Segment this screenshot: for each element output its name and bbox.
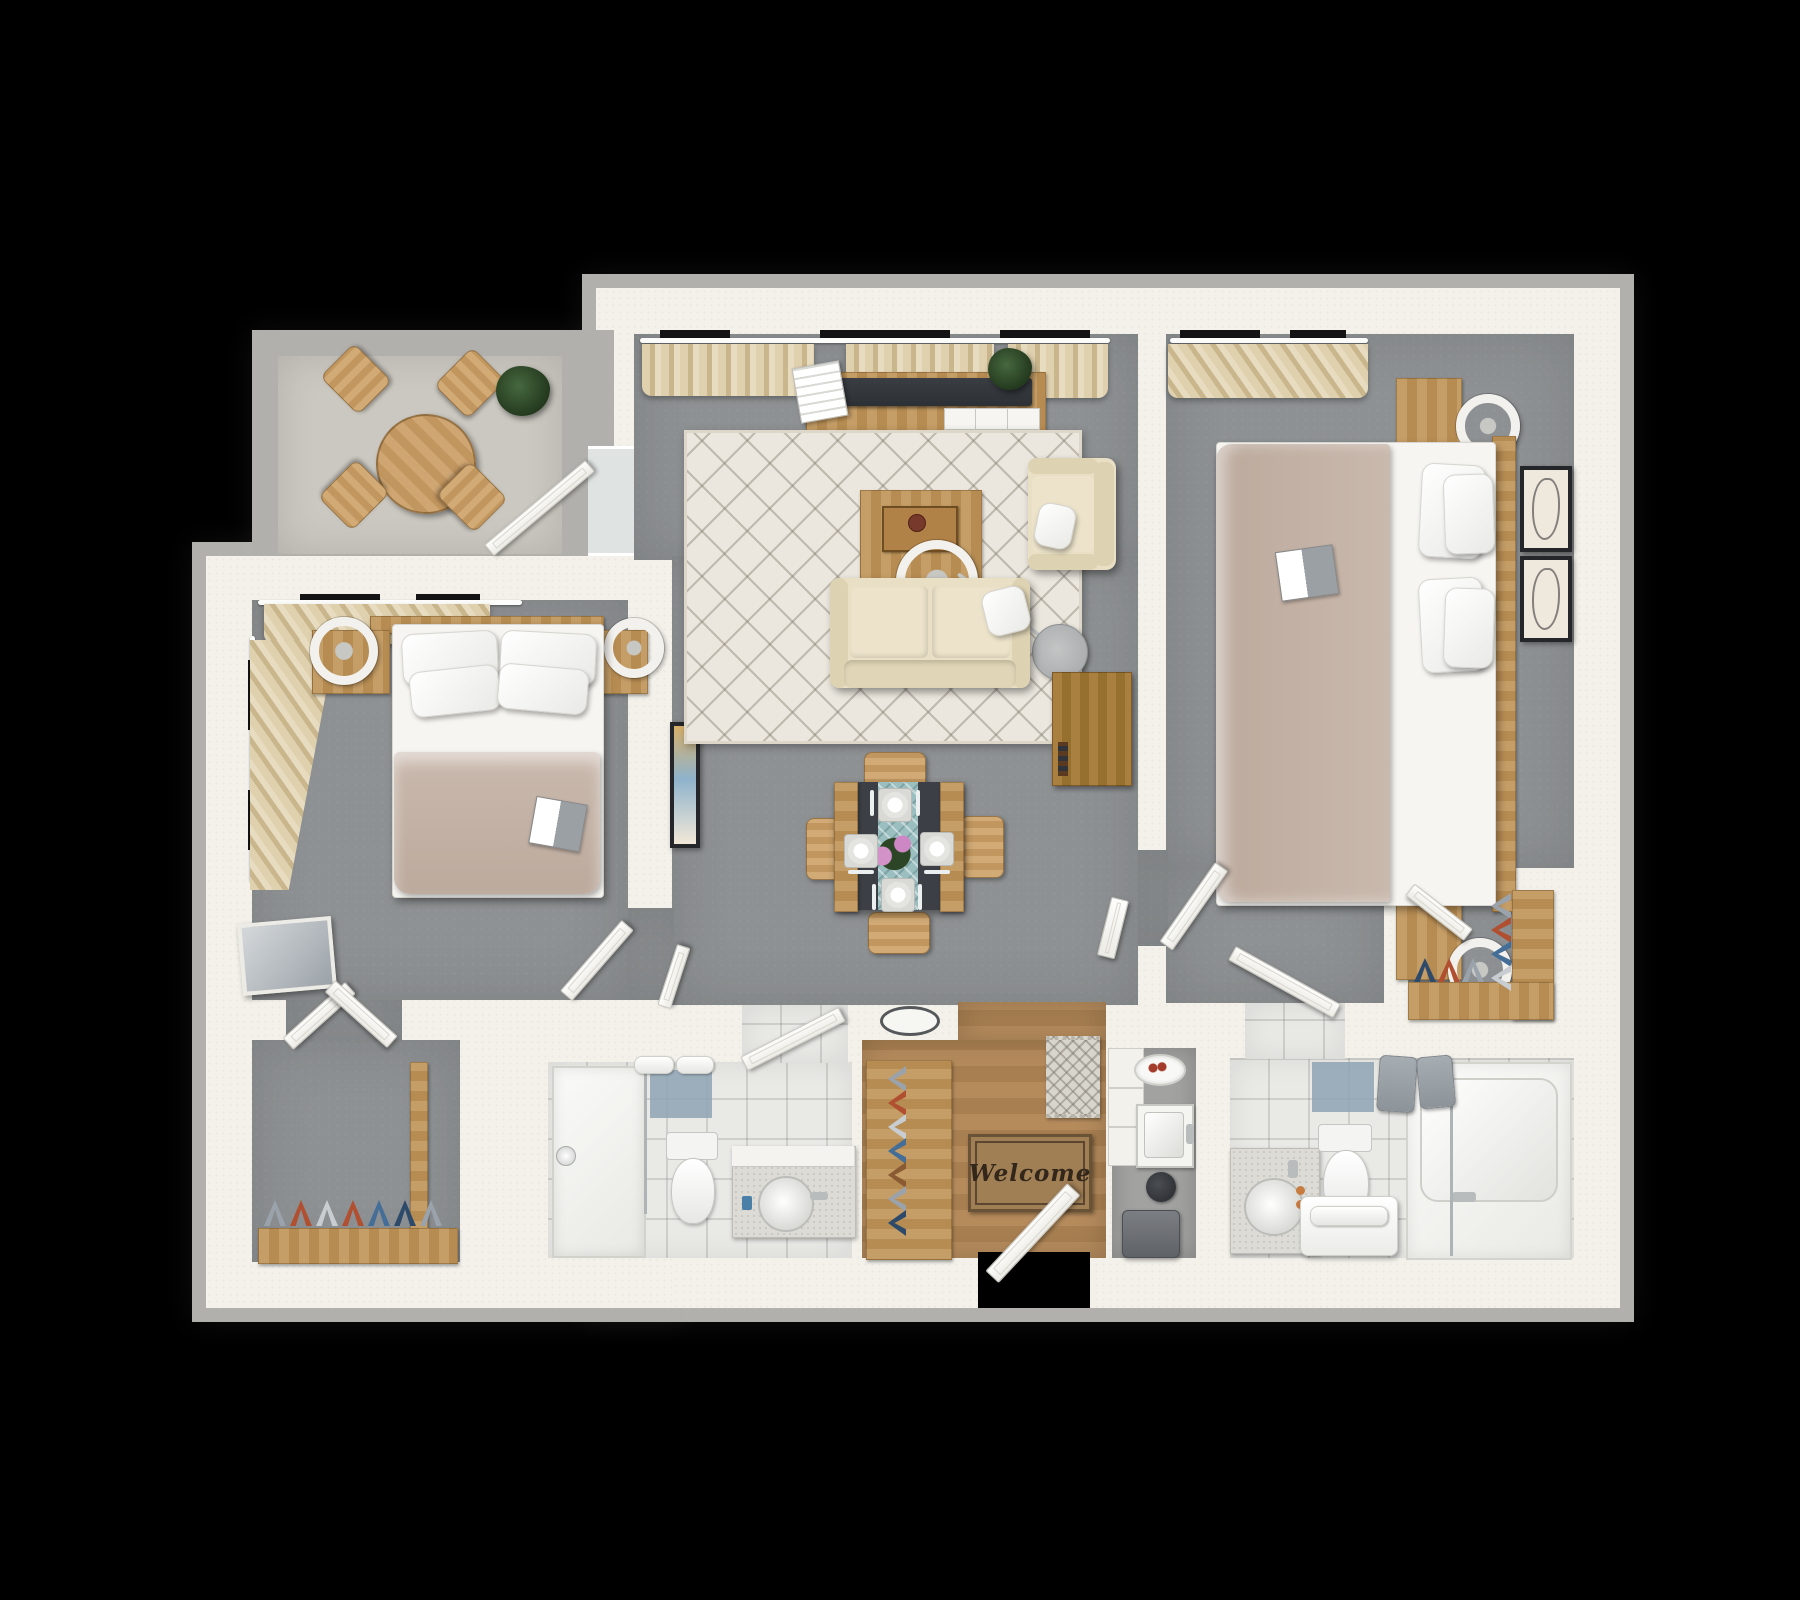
armchair-back [1094, 462, 1114, 566]
dining-chair-south [868, 912, 930, 954]
window-bedroom2-2 [1290, 330, 1346, 338]
cutlery [848, 870, 874, 874]
berry-dots [1148, 1062, 1168, 1074]
bath2-accent-tiles [1312, 1062, 1374, 1112]
dining-chair-east [960, 816, 1004, 878]
window-bedroom2-1 [1180, 330, 1260, 338]
place-setting-north [878, 788, 912, 822]
balcony-sliding-door-opening [588, 446, 634, 556]
bath1-faucet [810, 1192, 828, 1200]
bed2-framed-art-1 [1520, 466, 1572, 552]
cutlery [918, 884, 922, 910]
bed1-book [528, 796, 588, 852]
sofa-cushion-left [850, 586, 928, 658]
tray-bowl [908, 514, 926, 532]
toilet1-bowl [671, 1158, 715, 1224]
bath1-vanity-backsplash [732, 1146, 854, 1167]
bath1-towel-2 [676, 1056, 714, 1074]
hair-dryer [1146, 1172, 1176, 1202]
bath2-sink [1244, 1178, 1304, 1236]
bedroom2-door-opening [1138, 850, 1168, 946]
place-setting-east [920, 832, 954, 866]
curtain-rod-living [640, 338, 1110, 343]
bed2-duvet [1216, 444, 1390, 902]
closet1-shoe-rack [258, 1228, 458, 1264]
shower-head [556, 1146, 576, 1166]
sofa-back [844, 660, 1016, 688]
utility-sink-basin [1144, 1112, 1184, 1158]
closet1-side-panel [410, 1062, 428, 1232]
curtains-bedroom2 [1168, 344, 1368, 398]
waste-bin [1122, 1210, 1180, 1258]
curtains-living-1 [642, 344, 814, 396]
cutlery [872, 884, 876, 910]
curtain-rod-bedroom2 [1170, 338, 1368, 343]
cutlery [916, 790, 920, 816]
toilet2-tank [1318, 1124, 1372, 1152]
cutlery [870, 790, 874, 816]
armchair-arm-bottom [1028, 554, 1098, 570]
bed1-leaning-mirror [237, 916, 337, 996]
window-living-2 [820, 330, 950, 338]
bath1-accent-tiles [650, 1070, 712, 1118]
bath1-cup [742, 1196, 752, 1210]
entry-runner-rug [1046, 1036, 1100, 1118]
toilet1-tank [666, 1132, 718, 1160]
bed2-framed-art-2 [1520, 556, 1572, 642]
closet2-rack-horizontal [1408, 982, 1554, 1020]
bed2-pillow-4 [1443, 587, 1496, 669]
window-living-3 [1000, 330, 1090, 338]
utility-faucet [1186, 1124, 1194, 1144]
bath1-towel-1 [634, 1056, 674, 1074]
bath2-hanging-towel-2 [1416, 1055, 1456, 1110]
bed2-pillow-2 [1443, 473, 1496, 555]
cart-books [1058, 742, 1068, 776]
armchair-arm-top [1028, 458, 1098, 474]
bath1-sink [758, 1176, 814, 1232]
floor-plan-stage: Welcome [0, 0, 1800, 1600]
place-setting-west [844, 834, 878, 868]
towel-bench [1300, 1196, 1398, 1256]
tub-faucet [1452, 1192, 1476, 1202]
bed1-lamp-left [310, 617, 378, 685]
bath2-cup-1 [1296, 1186, 1305, 1195]
bed1-lamp-right [604, 618, 664, 678]
console-drawers [944, 408, 1040, 430]
bench-towel [1310, 1206, 1388, 1226]
magazines [792, 360, 849, 423]
entry-shoe-rack [866, 1060, 952, 1260]
bed1-pillow-4 [496, 662, 590, 716]
window-living-1 [660, 330, 730, 338]
bed1-pillow-3 [408, 663, 502, 718]
shower-glass [644, 1066, 647, 1214]
place-setting-south [881, 878, 915, 912]
bath2-hanging-towel-1 [1376, 1055, 1418, 1114]
bath2-faucet [1288, 1160, 1298, 1178]
hall-floor-vent [880, 1006, 940, 1036]
bed2-book [1275, 544, 1339, 602]
cutlery [924, 870, 950, 874]
